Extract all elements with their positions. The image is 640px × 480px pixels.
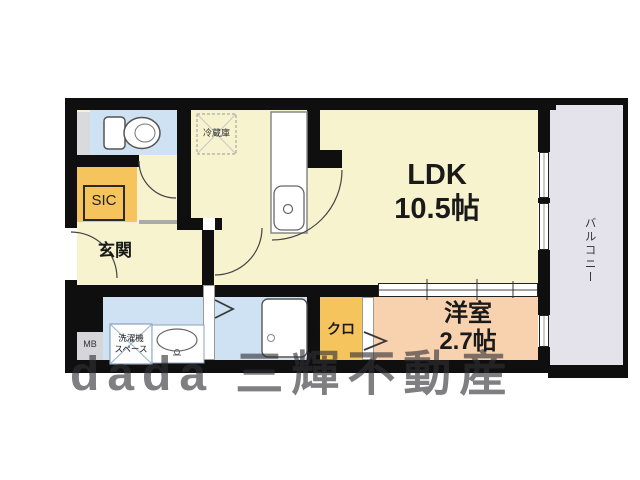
wall-segment <box>215 218 222 230</box>
wall-segment <box>215 285 380 297</box>
label-refrigerator: 冷蔵庫 <box>196 128 237 139</box>
wall-segment <box>307 102 320 152</box>
floor-plan: LDK 10.5帖 洋室 2.7帖 玄関 SIC クロ バルコニー 冷蔵庫 洗濯… <box>0 0 640 480</box>
pipe-space <box>77 112 90 155</box>
wall-segment <box>77 155 139 167</box>
wall-segment <box>77 297 103 332</box>
wall-segment <box>65 285 203 297</box>
wall-segment <box>538 98 550 152</box>
label-ldk: LDK 10.5帖 <box>357 158 517 226</box>
wall-segment <box>177 108 191 230</box>
wall-segment <box>65 98 77 228</box>
western-name: 洋室 <box>444 300 492 327</box>
window-ldk-upper <box>539 152 549 198</box>
window-western <box>539 315 549 347</box>
wall-segment <box>202 230 214 288</box>
label-balcony: バルコニー <box>582 206 596 296</box>
label-entrance: 玄関 <box>80 241 150 261</box>
window-ldk-lower <box>539 203 549 250</box>
wall-segment <box>538 250 550 315</box>
wall-segment <box>538 347 550 373</box>
label-sic: SIC <box>83 192 125 210</box>
wall-segment <box>177 218 203 230</box>
front-door-gap <box>65 228 77 280</box>
room-toilet <box>90 110 177 155</box>
ldk-name: LDK <box>407 159 467 191</box>
sliding-partition-ldk-western <box>378 283 538 297</box>
ldk-size: 10.5帖 <box>394 193 479 225</box>
watermark: dada 三輝不動産 <box>70 334 515 404</box>
door-gap-hall-ldk <box>203 218 215 230</box>
wall-segment <box>307 150 342 168</box>
